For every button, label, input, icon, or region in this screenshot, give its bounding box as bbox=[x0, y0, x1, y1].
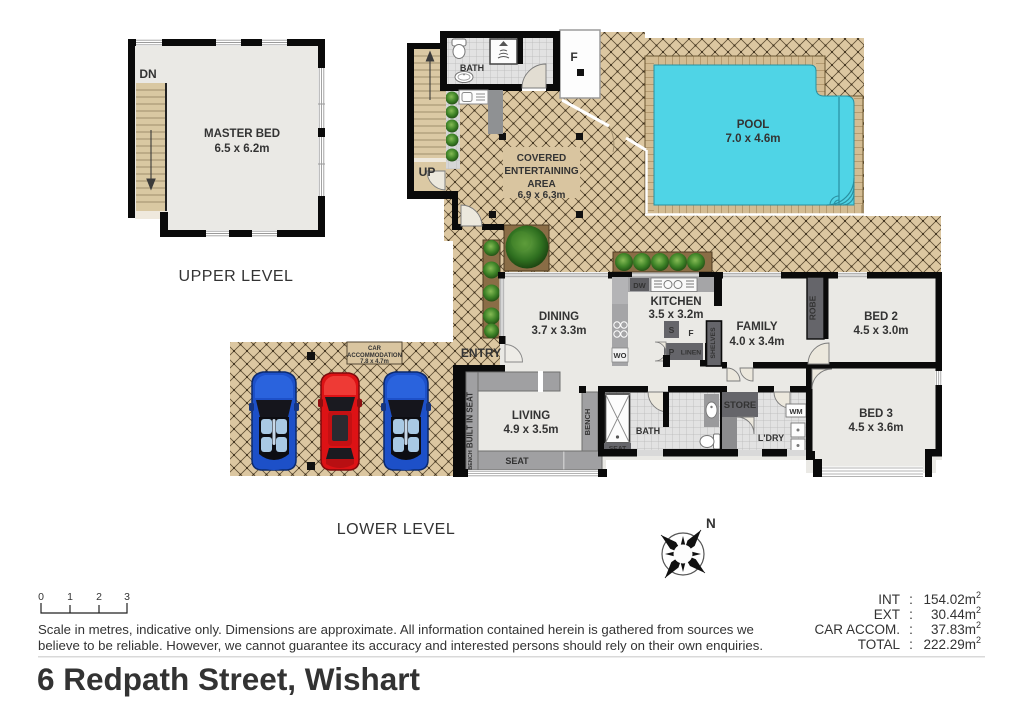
svg-text:EXT: EXT bbox=[874, 607, 900, 622]
svg-text:CAR ACCOM.: CAR ACCOM. bbox=[814, 622, 900, 637]
svg-text:BED 2: BED 2 bbox=[864, 311, 898, 323]
svg-text:222.29m: 222.29m bbox=[923, 637, 976, 652]
svg-text:CAR: CAR bbox=[368, 346, 382, 352]
svg-text:DINING: DINING bbox=[539, 311, 579, 323]
svg-text:ENTERTAINING: ENTERTAINING bbox=[504, 166, 578, 177]
svg-text:30.44m: 30.44m bbox=[931, 607, 976, 622]
svg-text:LINEN: LINEN bbox=[681, 350, 701, 357]
svg-text:ENTRY: ENTRY bbox=[461, 346, 501, 360]
svg-text:2: 2 bbox=[976, 635, 981, 645]
svg-text:154.02m: 154.02m bbox=[923, 592, 976, 607]
svg-text:KITCHEN: KITCHEN bbox=[650, 296, 701, 308]
svg-text:BATH: BATH bbox=[636, 426, 660, 436]
svg-text:0: 0 bbox=[38, 591, 44, 603]
svg-text:WO: WO bbox=[614, 351, 627, 360]
svg-text:DN: DN bbox=[139, 67, 156, 81]
svg-text:INT: INT bbox=[878, 592, 900, 607]
svg-text:4.0 x 3.4m: 4.0 x 3.4m bbox=[730, 336, 785, 348]
svg-text:COVERED: COVERED bbox=[517, 153, 566, 164]
svg-text:2: 2 bbox=[976, 590, 981, 600]
svg-text:MASTER BED: MASTER BED bbox=[204, 128, 280, 140]
svg-text:BUILT IN SEAT: BUILT IN SEAT bbox=[466, 392, 475, 448]
svg-text:believe to be reliable. Howev: believe to be reliable. However, we cann… bbox=[38, 638, 763, 653]
svg-text:LOWER LEVEL: LOWER LEVEL bbox=[337, 521, 455, 538]
svg-text:4.5 x 3.0m: 4.5 x 3.0m bbox=[854, 325, 909, 337]
svg-text:L'DRY: L'DRY bbox=[758, 433, 784, 443]
svg-text:F: F bbox=[570, 50, 577, 64]
svg-text:F: F bbox=[688, 328, 693, 338]
svg-text::: : bbox=[909, 592, 913, 607]
svg-text:FAMILY: FAMILY bbox=[736, 321, 777, 333]
svg-text:BENCH: BENCH bbox=[468, 450, 474, 470]
svg-text:SHELVES: SHELVES bbox=[710, 327, 717, 359]
svg-text:2: 2 bbox=[96, 591, 102, 603]
svg-text:BATH: BATH bbox=[460, 63, 484, 73]
svg-text:7.8 x 4.7m: 7.8 x 4.7m bbox=[360, 359, 389, 365]
svg-text:ROBE: ROBE bbox=[808, 295, 818, 320]
svg-text::: : bbox=[909, 637, 913, 652]
svg-text:UPPER LEVEL: UPPER LEVEL bbox=[179, 268, 294, 285]
svg-text:6.9 x 6.3m: 6.9 x 6.3m bbox=[518, 190, 566, 201]
svg-text:3.7 x 3.3m: 3.7 x 3.3m bbox=[532, 325, 587, 337]
svg-text:BENCH: BENCH bbox=[583, 409, 592, 436]
svg-text:2: 2 bbox=[976, 620, 981, 630]
svg-text:6 Redpath Street, Wishart: 6 Redpath Street, Wishart bbox=[37, 661, 421, 697]
svg-text:STORE: STORE bbox=[724, 400, 757, 411]
svg-text:7.0 x 4.6m: 7.0 x 4.6m bbox=[726, 133, 781, 145]
svg-text::: : bbox=[909, 622, 913, 637]
svg-text:3.5 x 3.2m: 3.5 x 3.2m bbox=[649, 309, 704, 321]
svg-text:TOTAL: TOTAL bbox=[858, 637, 901, 652]
svg-text::: : bbox=[909, 607, 913, 622]
svg-text:6.5 x 6.2m: 6.5 x 6.2m bbox=[215, 143, 270, 155]
svg-text:4.5 x 3.6m: 4.5 x 3.6m bbox=[849, 422, 904, 434]
svg-text:UP: UP bbox=[419, 165, 436, 179]
svg-text:1: 1 bbox=[67, 591, 73, 603]
svg-text:4.9 x 3.5m: 4.9 x 3.5m bbox=[504, 424, 559, 436]
svg-text:AREA: AREA bbox=[527, 179, 555, 190]
svg-text:N: N bbox=[706, 516, 716, 531]
svg-text:SEAT: SEAT bbox=[505, 456, 529, 466]
svg-text:BED 3: BED 3 bbox=[859, 408, 893, 420]
svg-text:DW: DW bbox=[633, 281, 646, 290]
svg-text:LIVING: LIVING bbox=[512, 410, 550, 422]
svg-text:WM: WM bbox=[789, 407, 802, 416]
svg-text:2: 2 bbox=[976, 605, 981, 615]
svg-text:POOL: POOL bbox=[737, 119, 770, 131]
svg-text:37.83m: 37.83m bbox=[931, 622, 976, 637]
svg-text:Scale in metres, indicative on: Scale in metres, indicative only. Dimens… bbox=[38, 622, 754, 637]
svg-text:S: S bbox=[669, 325, 675, 335]
svg-text:3: 3 bbox=[124, 591, 130, 603]
